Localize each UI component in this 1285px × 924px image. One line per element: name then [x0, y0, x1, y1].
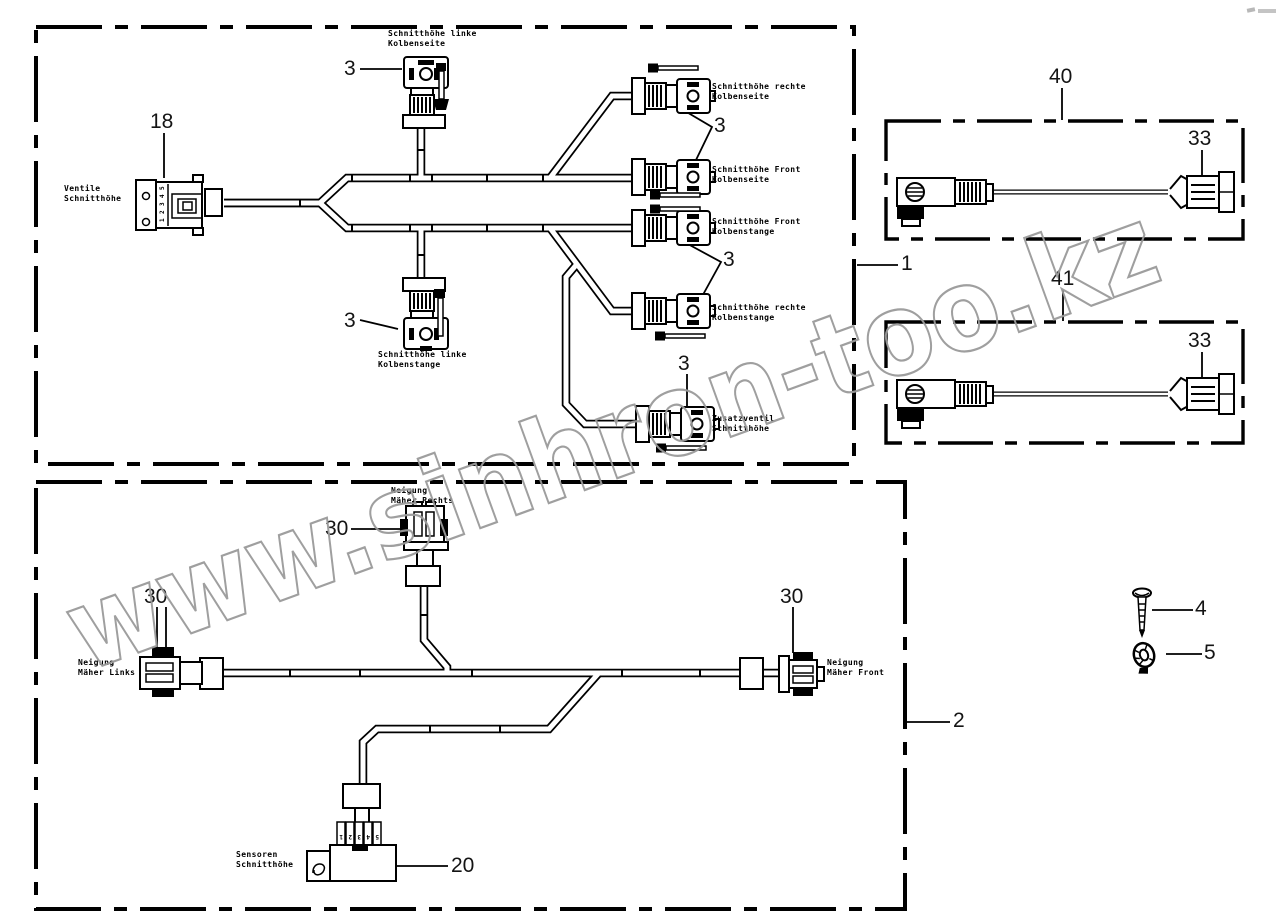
connector-3-front-kolbenseite [632, 159, 715, 195]
callout-20: 20 [451, 854, 474, 878]
label-schnitthoehe-rechte-kolbenstange: Schnitthöhe rechte Kolbenstange [712, 303, 806, 322]
callout-30-rechts: 30 [325, 517, 348, 541]
cable-assembly-41 [897, 374, 1234, 428]
callout-4: 4 [1195, 597, 1207, 621]
callout-40: 40 [1049, 65, 1072, 89]
connector-30-neigung-front [779, 652, 824, 696]
callout-30-front: 30 [780, 585, 803, 609]
connector-3-front-kolbenstange [632, 210, 715, 246]
label-neigung-maeher-front: Neigung Mäher Front [827, 658, 884, 677]
connector-3-zusatzventil [636, 406, 719, 442]
connector-30-neigung-rechts [400, 502, 448, 586]
screw [655, 332, 705, 341]
callout-3-linke-kolbenstange: 3 [344, 309, 356, 333]
svg-text:5: 5 [159, 186, 166, 190]
label-neigung-maeher-rechts: Neigung Mäher Rechts [391, 486, 454, 505]
connector-3-linke-kolbenseite [403, 57, 449, 128]
label-neigung-maeher-links: Neigung Mäher Links [78, 658, 135, 677]
svg-text:5: 5 [375, 833, 379, 840]
callout-3-zusatzventil: 3 [678, 352, 690, 376]
connector-3-rechte-kolbenstange [632, 293, 715, 329]
screw [656, 444, 706, 453]
cable-coupler [200, 658, 223, 689]
clamp-5 [1130, 640, 1160, 676]
screw [648, 64, 698, 73]
svg-text:1: 1 [159, 218, 166, 222]
cable-coupler [740, 658, 763, 689]
parts-diagram-page: 5 4 3 2 1 [0, 0, 1285, 924]
callout-33-box40: 33 [1188, 127, 1211, 151]
label-sensoren-schnitthoehe: Sensoren Schnitthöhe [236, 850, 293, 869]
callout-5: 5 [1204, 641, 1216, 665]
callout-18: 18 [150, 110, 173, 134]
svg-text:3: 3 [357, 833, 361, 840]
label-schnitthoehe-front-kolbenstange: Schnitthöhe Front Kolbenstange [712, 217, 801, 236]
svg-text:4: 4 [159, 194, 166, 198]
label-schnitthoehe-linke-kolbenseite: Schnitthöhe linke Kolbenseite [388, 29, 477, 48]
callout-1: 1 [901, 252, 913, 276]
svg-text:1: 1 [339, 833, 343, 840]
harness1-cables [224, 96, 637, 424]
wiring-harness-diagram: 5 4 3 2 1 [0, 0, 1285, 924]
connector-30-neigung-links [140, 647, 202, 697]
label-schnitthoehe-front-kolbenseite: Schnitthöhe Front Kolbenseite [712, 165, 801, 184]
svg-text:4: 4 [366, 833, 370, 840]
connector-3-linke-kolbenstange [403, 278, 448, 351]
callout-41: 41 [1051, 267, 1074, 291]
label-schnitthoehe-rechte-kolbenseite: Schnitthöhe rechte Kolbenseite [712, 82, 806, 101]
label-schnitthoehe-linke-kolbenstange: Schnitthöhe linke Kolbenstange [378, 350, 467, 369]
screw-4 [1133, 589, 1151, 639]
connector-20-sensoren: 1 2 3 4 5 [307, 784, 396, 881]
svg-text:3: 3 [159, 202, 166, 206]
label-ventile-schnitthoehe: Ventile Schnitthöhe [64, 184, 121, 203]
callout-2: 2 [953, 709, 965, 733]
callout-33-box41: 33 [1188, 329, 1211, 353]
cable-assembly-40 [897, 172, 1234, 226]
svg-text:2: 2 [348, 833, 352, 840]
callout-30-links: 30 [144, 585, 167, 609]
harness2-cables [200, 584, 781, 784]
callout-3-kolbenseite-pair: 3 [714, 114, 726, 138]
svg-text:2: 2 [159, 210, 166, 214]
callout-3-linke-kolbenseite: 3 [344, 57, 356, 81]
label-zusatzventil-schnitthoehe: Zusatzventil Schnitthöhe [712, 414, 775, 433]
connector-3-rechte-kolbenseite [632, 78, 715, 114]
callout-3-kolbenstange-pair: 3 [723, 248, 735, 272]
connector-18-ventile: 5 4 3 2 1 [136, 175, 222, 235]
